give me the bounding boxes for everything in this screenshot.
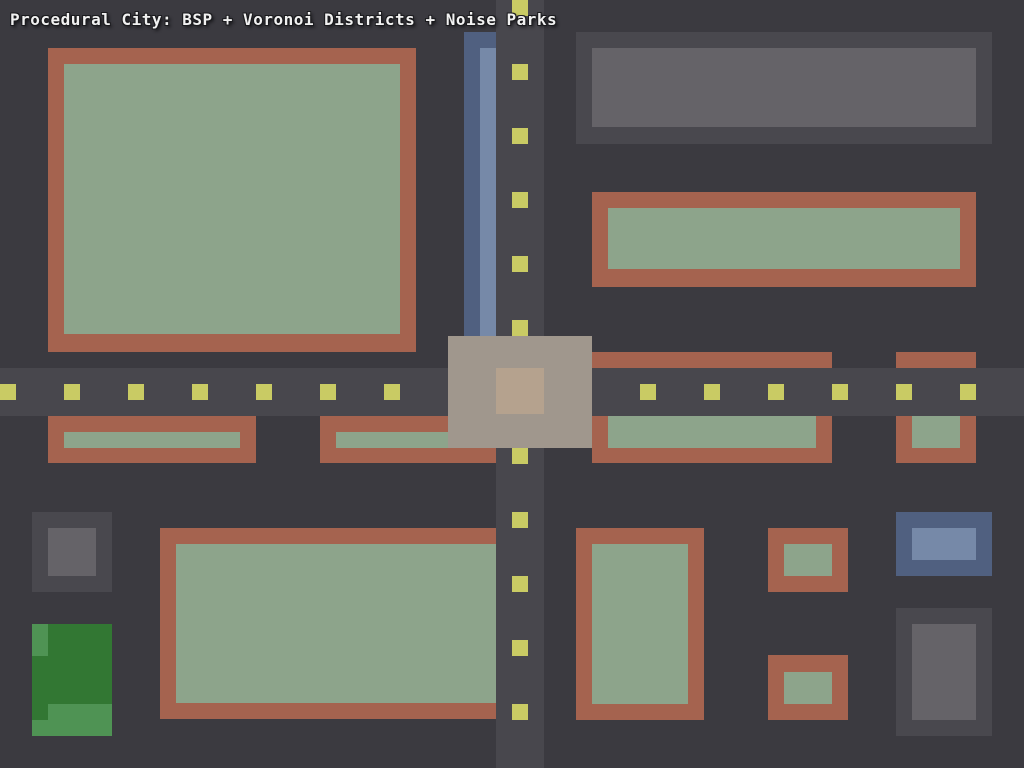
road-dash-h <box>896 384 912 400</box>
park-patch <box>32 720 48 736</box>
road-dash-v <box>512 192 528 208</box>
building-s-large-inner <box>176 544 496 703</box>
road-dash-h <box>192 384 208 400</box>
canal-water <box>480 48 496 336</box>
road-dash-v <box>512 512 528 528</box>
road-dash-v <box>512 704 528 720</box>
road-dash-v <box>512 640 528 656</box>
road-dash-h <box>832 384 848 400</box>
road-dash-h <box>704 384 720 400</box>
page-title: Procedural City: BSP + Voronoi Districts… <box>10 10 557 29</box>
park-patch <box>32 624 48 656</box>
building-s-mid-inner <box>592 544 688 704</box>
building-se-blue-inner <box>912 528 976 560</box>
building-mw1-inner <box>64 432 240 448</box>
road-dash-v <box>512 256 528 272</box>
road-dash-h <box>320 384 336 400</box>
building-ne-gray-inner <box>592 48 976 127</box>
road-dash-v <box>512 128 528 144</box>
road-dash-h <box>128 384 144 400</box>
building-s-small1-inner <box>784 544 832 576</box>
plaza-center <box>496 368 544 414</box>
road-dash-h <box>64 384 80 400</box>
building-se-gray-inner <box>912 624 976 720</box>
road-dash-v <box>512 448 528 464</box>
road-dash-v <box>512 320 528 336</box>
building-s-small2-inner <box>784 672 832 704</box>
park-patch <box>48 704 112 736</box>
road-dash-h <box>640 384 656 400</box>
building-sw-gray-inner <box>48 528 96 576</box>
road-dash-h <box>768 384 784 400</box>
road-dash-v <box>512 64 528 80</box>
building-nw-inner <box>64 64 400 334</box>
city-map: Procedural City: BSP + Voronoi Districts… <box>0 0 1024 768</box>
road-dash-v <box>512 576 528 592</box>
road-dash-h <box>960 384 976 400</box>
building-e-inner <box>608 208 960 269</box>
road-dash-h <box>0 384 16 400</box>
road-dash-h <box>256 384 272 400</box>
road-dash-h <box>384 384 400 400</box>
